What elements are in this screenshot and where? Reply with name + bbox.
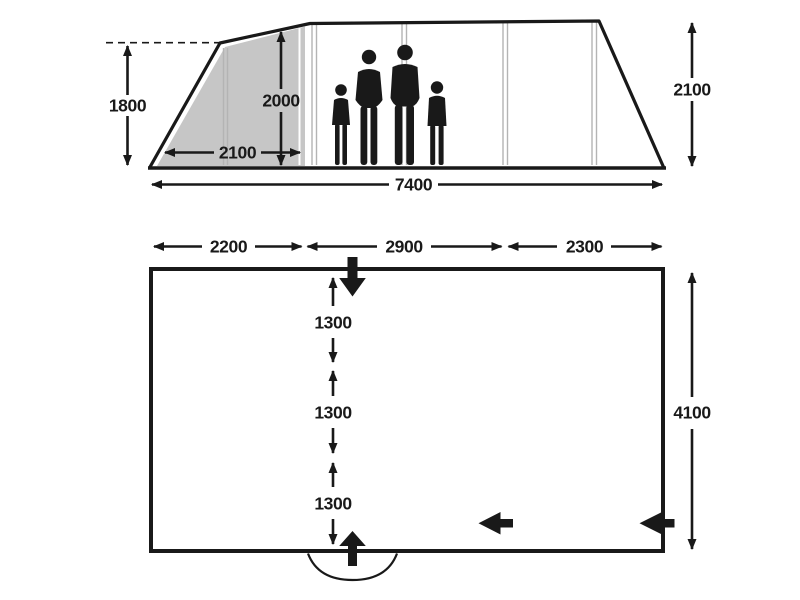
dimension-2300: 2300 [509,237,662,257]
dimension-height-2100: 2100 [673,23,711,166]
floor-plan-view: 2200 2900 2300 1300 1300 1300 [151,237,711,581]
family-silhouette [332,45,447,165]
tent-dimension-diagram: 1800 2000 2100 2100 7400 [0,0,800,600]
person-silhouette-man [391,45,420,165]
person-silhouette-woman [356,50,383,165]
dim-label-height-right: 2100 [673,80,711,100]
floorplan-walls [151,269,663,551]
dim-label-section-2: 2900 [385,237,423,257]
dim-label-cabin-depth-3: 1300 [314,494,352,514]
dimension-2900: 2900 [308,237,502,257]
side-elevation-view: 1800 2000 2100 2100 7400 [106,21,711,195]
dim-label-total-length: 7400 [395,175,433,195]
dim-label-peak-height: 1800 [109,96,147,116]
dim-label-section-1: 2200 [210,237,248,257]
person-silhouette-girl [332,84,350,165]
dim-label-total-depth: 4100 [673,403,711,423]
dimension-4100: 4100 [673,273,711,549]
dim-label-cabin-depth-1: 1300 [314,313,352,333]
dimension-2200: 2200 [154,237,302,257]
dimension-7400: 7400 [152,175,662,195]
dim-label-porch-depth: 2100 [219,143,257,163]
dim-label-cabin-depth-2: 1300 [314,403,352,423]
dim-label-section-3: 2300 [566,237,604,257]
dimension-1800: 1800 [109,46,147,165]
dim-label-inner-height: 2000 [262,91,300,111]
person-silhouette-boy [428,81,447,165]
diagram-canvas: 1800 2000 2100 2100 7400 [0,0,800,600]
